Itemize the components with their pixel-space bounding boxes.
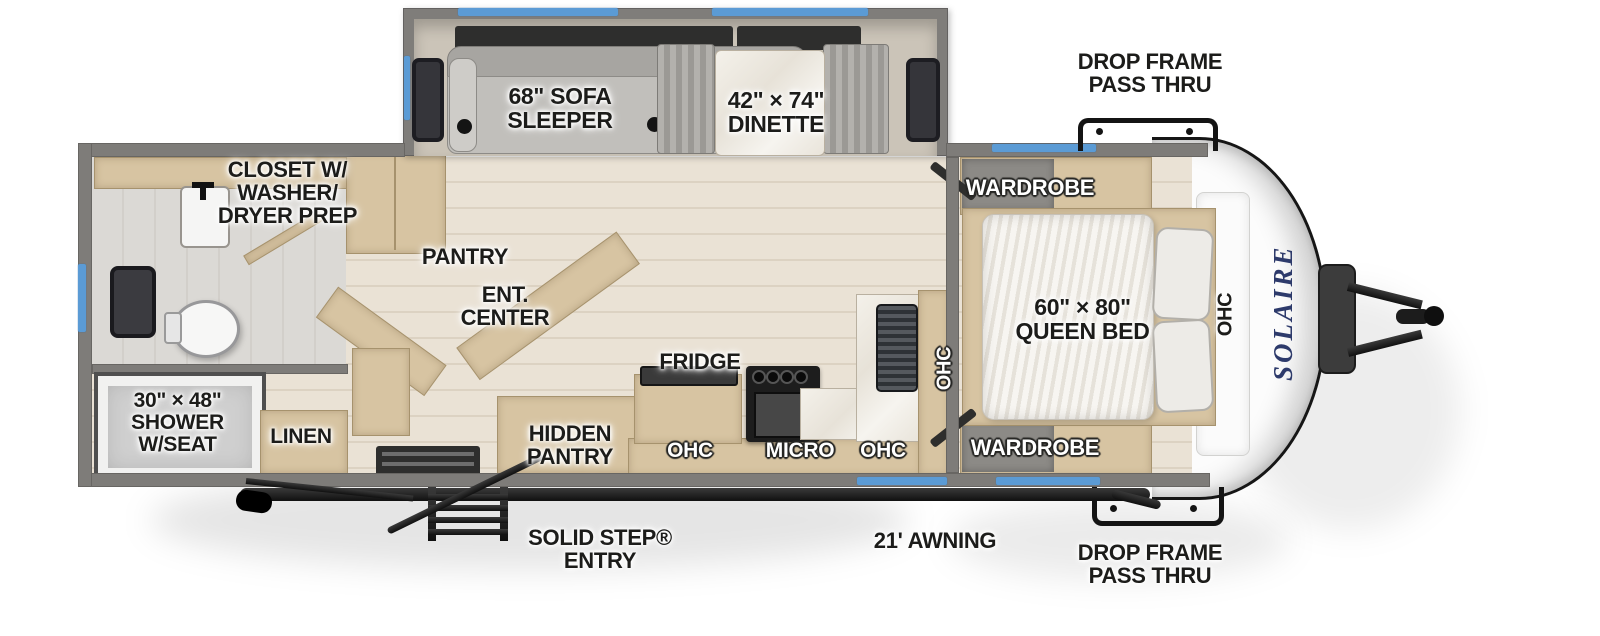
top-wall-rear-section — [78, 143, 405, 157]
brand-logo: SOLAIRE — [1268, 251, 1306, 381]
ohc-counter-label: OHC — [935, 338, 956, 400]
solid-step-entry-label: SOLID STEP® ENTRY — [505, 526, 695, 572]
bathroom-window — [110, 266, 156, 338]
micro-label: MICRO — [755, 440, 845, 462]
pantry-label: PANTRY — [410, 245, 520, 268]
toilet — [172, 300, 240, 358]
wardrobe-bottom-label: WARDROBE — [945, 436, 1125, 459]
propane-cover — [1318, 264, 1356, 374]
entry-step-platform — [376, 446, 480, 476]
hitch-ball — [1424, 306, 1444, 326]
entry-step-rung — [428, 517, 508, 523]
closet-label: CLOSET W/ WASHER/ DRYER PREP — [190, 158, 385, 227]
linen-label: LINEN — [256, 426, 346, 448]
fridge-label: FRIDGE — [645, 350, 755, 373]
window-slideout-top-2 — [712, 8, 868, 16]
floorplan-canvas: SOLAIRE 68" SOFA SLEEPER 42" × 74" DINET… — [0, 0, 1600, 636]
ohc-left-label: OHC — [655, 440, 725, 462]
slideout-window — [412, 58, 444, 142]
kitchen-sink — [876, 304, 918, 392]
ent-center-label: ENT. CENTER — [445, 283, 565, 329]
window-rear-wall — [78, 264, 86, 332]
queen-bed-label: 60" × 80" QUEEN BED — [1000, 295, 1165, 343]
pantry-cabinet-divider — [394, 154, 396, 250]
entry-step-platform-tread — [382, 462, 474, 466]
window-bedroom-bottom — [996, 477, 1100, 485]
awning-label: 21' AWNING — [845, 529, 1025, 552]
window-kitchen-bottom — [857, 477, 947, 485]
stove-burner — [766, 370, 780, 384]
slideout-window — [906, 58, 940, 142]
bracket-rivet — [1110, 505, 1117, 512]
sofa-label: 68" SOFA SLEEPER — [460, 84, 660, 132]
drop-frame-bottom-label: DROP FRAME PASS THRU — [1055, 541, 1245, 587]
entry-step-platform-tread — [382, 452, 474, 456]
toilet-tank — [164, 312, 182, 344]
shower-label: 30" × 48" SHOWER W/SEAT — [110, 390, 245, 456]
bedroom-wall — [946, 157, 959, 473]
bracket-rivet — [1190, 505, 1197, 512]
drop-frame-top-label: DROP FRAME PASS THRU — [1055, 50, 1245, 96]
ohc-front-label: OHC — [1216, 275, 1237, 355]
ent-center-cabinet — [352, 348, 410, 436]
ohc-right-label: OHC — [848, 440, 918, 462]
wardrobe-top-label: WARDROBE — [940, 176, 1120, 199]
entry-step-rung — [428, 529, 508, 535]
hidden-pantry-label: HIDDEN PANTRY — [500, 422, 640, 468]
window-slideout-top-1 — [458, 8, 618, 16]
stove-burner — [794, 370, 808, 384]
bracket-rivet — [1186, 128, 1193, 135]
window-slideout-side — [404, 56, 410, 120]
stove-burner — [780, 370, 794, 384]
dinette-label: 42" × 74" DINETTE — [686, 88, 866, 136]
bracket-rivet — [1096, 128, 1103, 135]
